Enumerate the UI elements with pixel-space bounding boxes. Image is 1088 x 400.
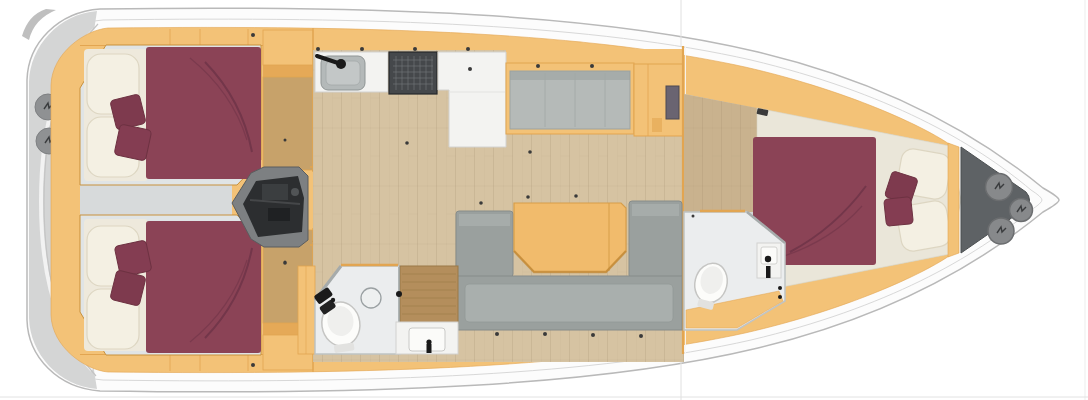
door-hook bbox=[692, 215, 695, 218]
bow-hatch-icon bbox=[1010, 199, 1033, 222]
bow-hatch-icon bbox=[988, 218, 1014, 244]
head-cabinet bbox=[298, 266, 315, 354]
bow-hatch-icon bbox=[986, 174, 1013, 201]
mirror-icon bbox=[361, 288, 381, 308]
shower-teak-grate bbox=[400, 266, 458, 323]
cabinet-detail bbox=[652, 118, 662, 132]
wardrobe-cabinet bbox=[263, 30, 313, 65]
faucet-icon bbox=[765, 256, 771, 262]
sofa-arm-top bbox=[632, 204, 679, 216]
latch-dot bbox=[283, 261, 287, 265]
latch-dot bbox=[468, 67, 472, 71]
engine-detail bbox=[262, 184, 288, 200]
throw-cushion bbox=[884, 197, 914, 227]
throw-cushion bbox=[110, 94, 146, 130]
headboard-strip bbox=[948, 143, 959, 257]
fwd-entrance-planks bbox=[684, 94, 757, 212]
fixture-dot bbox=[331, 298, 335, 302]
faucet-icon bbox=[336, 59, 346, 69]
throw-cushion bbox=[110, 270, 146, 306]
cockpit-floor bbox=[80, 184, 232, 216]
engine-detail bbox=[268, 208, 290, 221]
salon-bench bbox=[506, 63, 645, 134]
floorplan-svg bbox=[0, 0, 1088, 400]
fixture-dot bbox=[778, 286, 782, 290]
bench-shadow bbox=[510, 71, 630, 80]
engine-detail bbox=[291, 188, 299, 196]
yacht-floorplan bbox=[0, 0, 1088, 400]
wardrobe-floor bbox=[263, 77, 313, 170]
dark-panel bbox=[666, 86, 679, 119]
salon-table bbox=[514, 203, 626, 272]
sofa-arm-top bbox=[459, 214, 510, 226]
latch-dot bbox=[284, 139, 287, 142]
throw-cushion bbox=[114, 124, 152, 161]
latch-dot bbox=[251, 33, 255, 37]
double-berth bbox=[146, 47, 261, 179]
faucet-icon bbox=[427, 344, 432, 353]
faucet-icon bbox=[426, 339, 431, 344]
faucet-icon bbox=[766, 266, 771, 278]
tv-cabinet bbox=[634, 64, 683, 136]
door-handle-icon bbox=[396, 291, 402, 297]
double-berth bbox=[146, 221, 261, 353]
wardrobe-front bbox=[263, 65, 313, 77]
sofa-seat-cushion bbox=[465, 284, 673, 322]
cockpit-strip bbox=[80, 184, 232, 216]
latch-dot bbox=[251, 363, 255, 367]
latch-dot bbox=[590, 64, 594, 68]
aft-cabin-port bbox=[80, 28, 313, 185]
fixture-dot bbox=[778, 295, 782, 299]
latch-dot bbox=[536, 64, 540, 68]
